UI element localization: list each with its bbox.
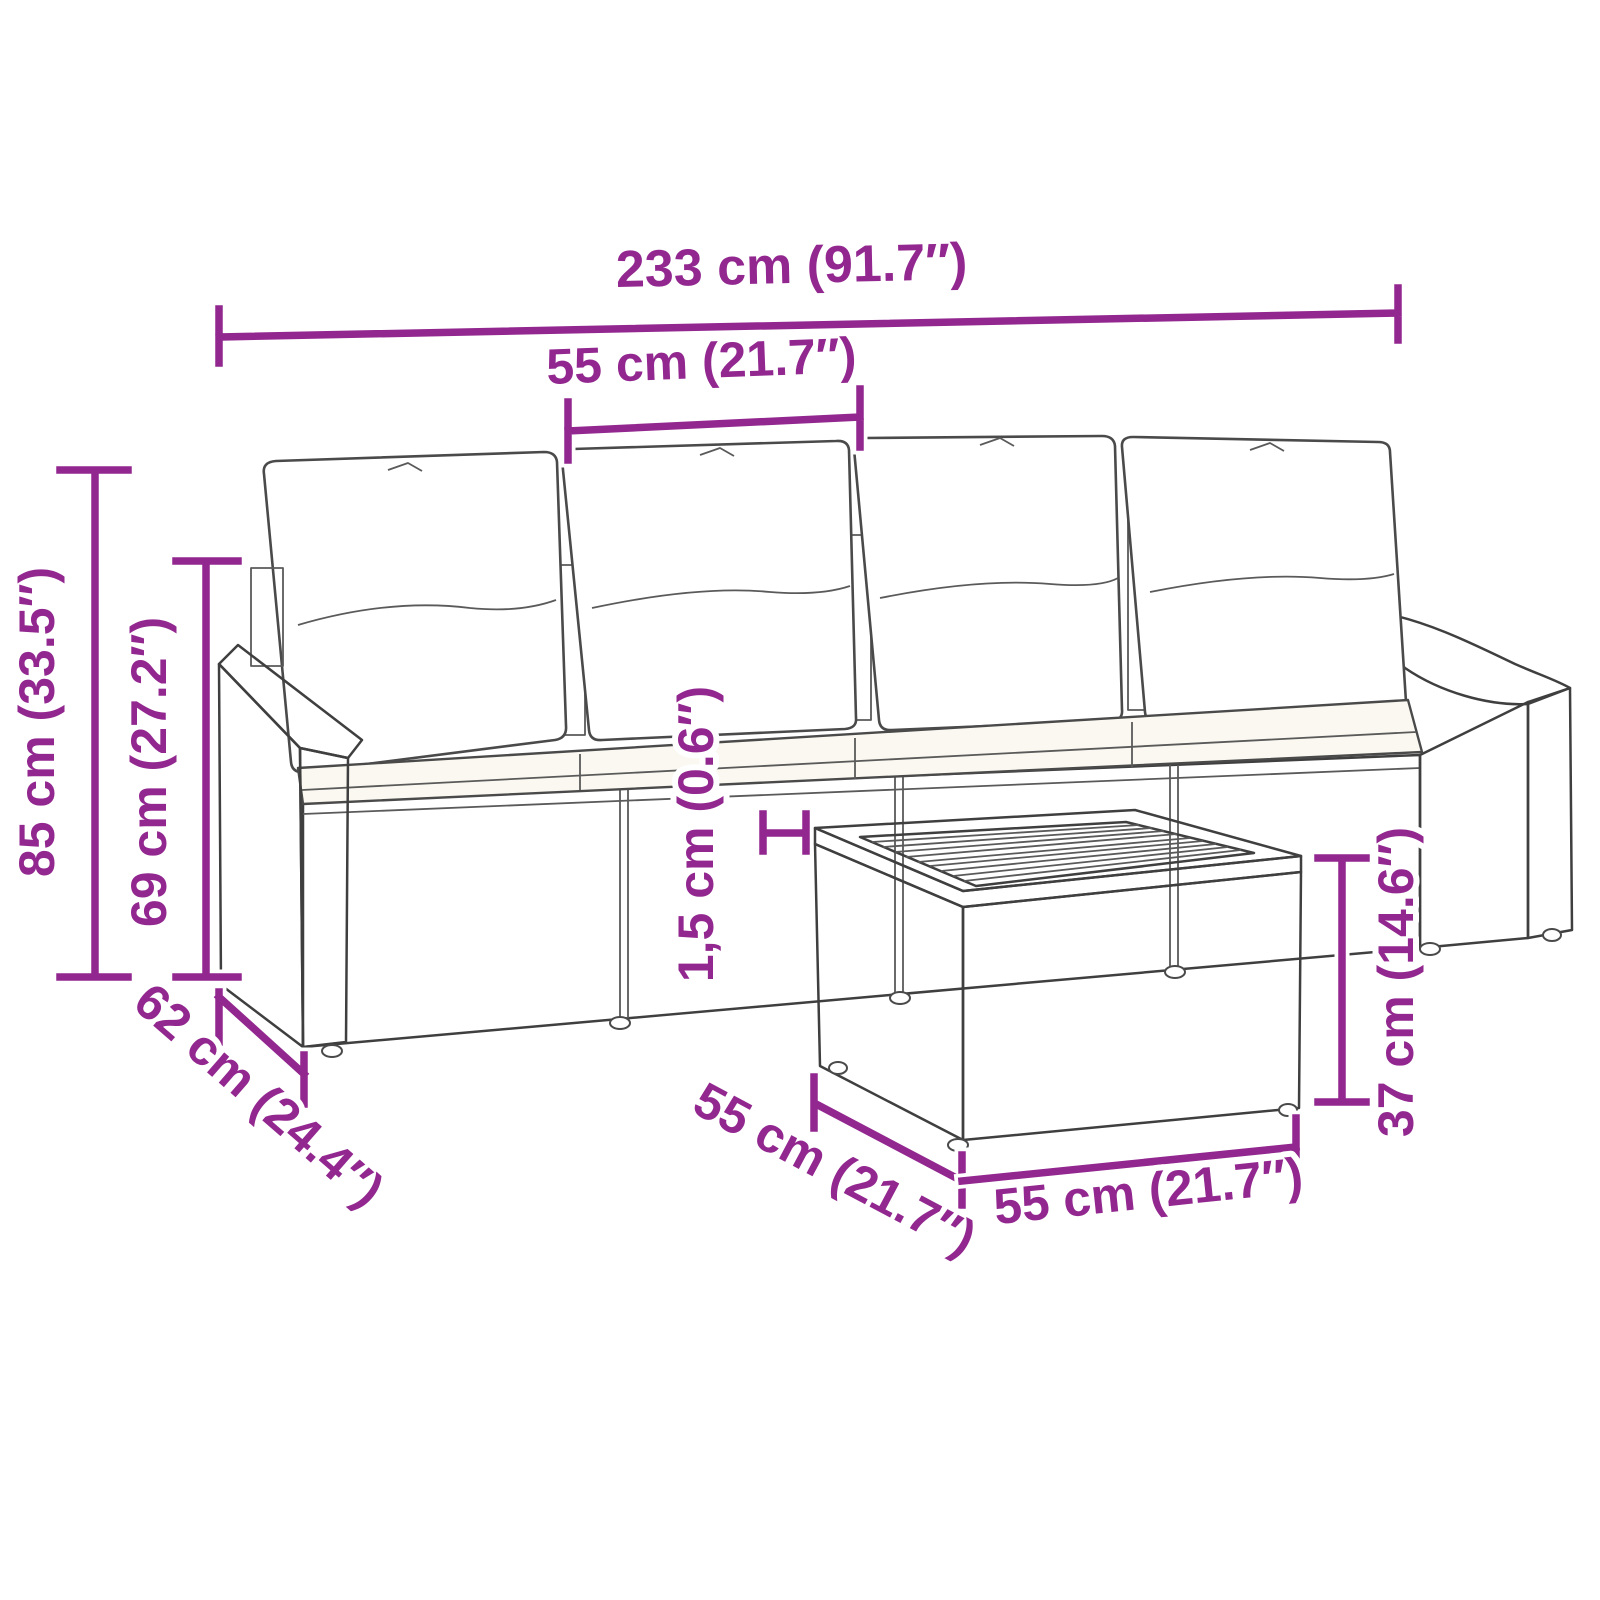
dim-cushion-thickness-label: 1,5 cm (0.6″) bbox=[668, 686, 724, 982]
diagram-canvas: 233 cm (91.7″) 55 cm (21.7″) 85 cm (33.5… bbox=[0, 0, 1600, 1600]
dim-overall-width-label: 233 cm (91.7″) bbox=[615, 233, 968, 299]
table-left-face bbox=[815, 844, 963, 1140]
right-armrest-swoop bbox=[1382, 613, 1570, 704]
dim-depth-label: 62 cm (24.4″) bbox=[124, 972, 395, 1218]
dim-total-height-label: 85 cm (33.5″) bbox=[9, 567, 65, 877]
dim-line-total-height bbox=[60, 470, 128, 977]
dim-table-height-label: 37 cm (14.6″) bbox=[1368, 827, 1424, 1137]
dim-line-table-height bbox=[1318, 858, 1366, 1102]
product-dimension-diagram: 233 cm (91.7″) 55 cm (21.7″) 85 cm (33.5… bbox=[0, 0, 1600, 1600]
dim-seat-back-height-label: 69 cm (27.2″) bbox=[121, 617, 177, 927]
dim-seat-width-label: 55 cm (21.7″) bbox=[545, 327, 857, 395]
sofa-base bbox=[303, 755, 1420, 1047]
dim-line-seat-back-height bbox=[176, 561, 238, 977]
table-right-face bbox=[963, 872, 1301, 1140]
back-cushion-1 bbox=[264, 452, 566, 772]
